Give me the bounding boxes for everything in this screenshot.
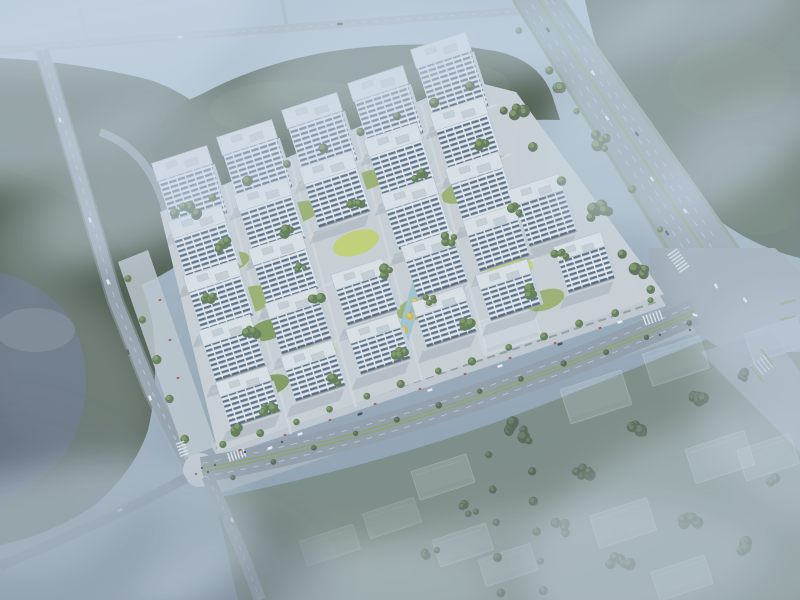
- aerial-rendering-canvas: [0, 0, 800, 600]
- color-cast-overlay: [0, 0, 800, 600]
- aerial-rendering: Hazy bird's-eye architectural rendering …: [0, 0, 800, 600]
